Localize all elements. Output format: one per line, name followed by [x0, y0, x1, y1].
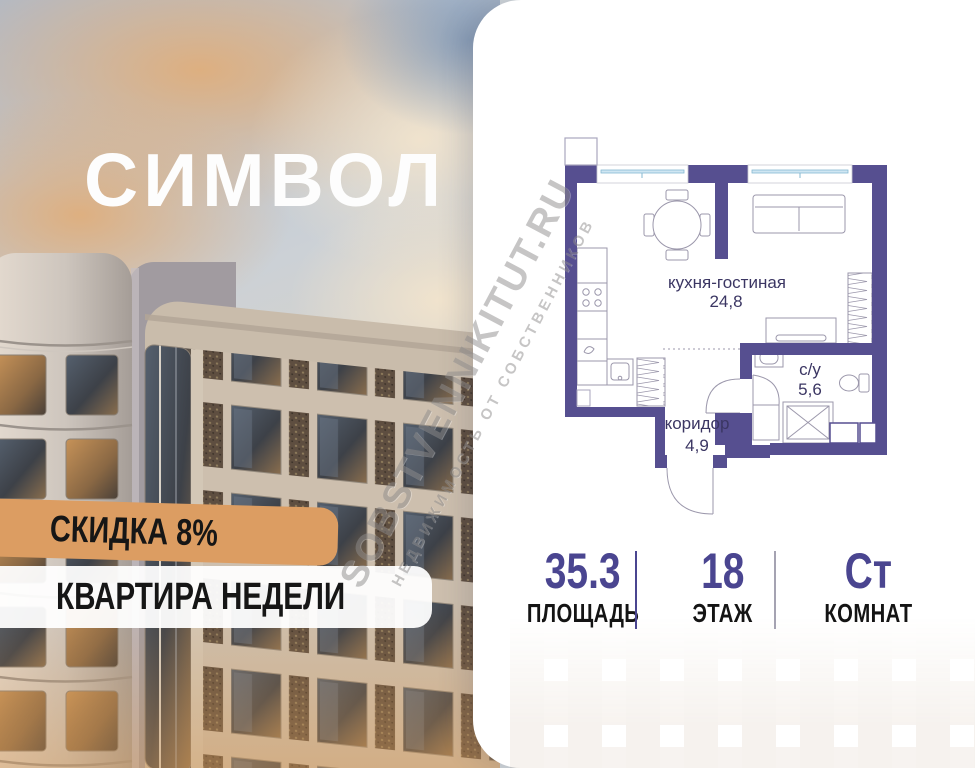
stat-rooms-value: Ст: [844, 545, 891, 597]
stat-floor: 18 ЭТАЖ: [646, 545, 800, 628]
floorplan: кухня-гостиная 24,8 коридор 4,9 с/у 5,6: [557, 133, 897, 523]
stat-rooms: Ст КОМНАТ: [786, 545, 950, 628]
stats-divider-2: [774, 551, 776, 629]
promo-card[interactable]: СИМВОЛ СКИДКА 8% КВАРТИРА НЕДЕЛИ: [0, 0, 975, 768]
stat-area: 35.3 ПЛОЩАДЬ: [500, 545, 666, 628]
stat-floor-label: ЭТАЖ: [693, 598, 753, 628]
room-living-name: кухня-гостиная: [668, 273, 786, 293]
room-bathroom-name: с/у: [799, 360, 821, 380]
room-bathroom-area: 5,6: [798, 380, 822, 400]
brand-logo: СИМВОЛ: [60, 130, 470, 230]
discount-badge: СКИДКА 8%: [0, 498, 339, 566]
discount-badge-label: СКИДКА 8%: [49, 508, 218, 555]
weekly-offer-label: КВАРТИРА НЕДЕЛИ: [56, 576, 345, 619]
stats-divider-1: [635, 551, 637, 629]
stat-area-value: 35.3: [545, 545, 621, 597]
stat-area-label: ПЛОЩАДЬ: [527, 598, 639, 628]
floorplan-drawing: [557, 133, 897, 523]
weekly-offer-badge: КВАРТИРА НЕДЕЛИ: [0, 566, 432, 628]
card-ghost-overlay: [510, 615, 975, 768]
room-corridor-area: 4,9: [685, 436, 709, 456]
room-living-area: 24,8: [709, 292, 742, 312]
building-photo: [0, 0, 500, 768]
room-corridor-name: коридор: [665, 414, 730, 434]
apartment-stats: 35.3 ПЛОЩАДЬ 18 ЭТАЖ Ст КОМНАТ: [500, 545, 950, 637]
stat-floor-value: 18: [701, 545, 744, 597]
stat-rooms-label: КОМНАТ: [824, 598, 912, 628]
